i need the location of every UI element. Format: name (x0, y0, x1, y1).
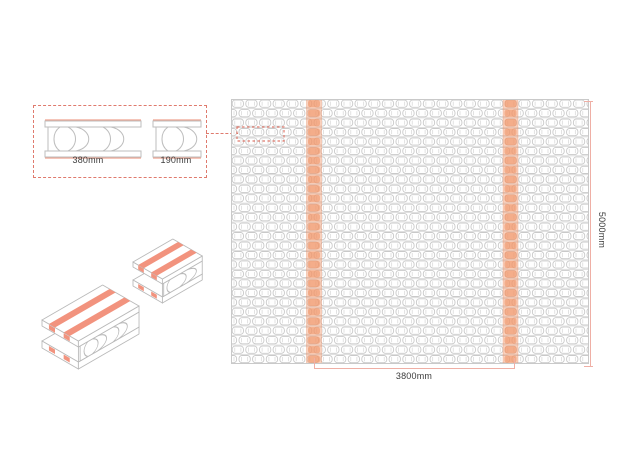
grid-cell (410, 289, 421, 296)
grid-cell (471, 185, 482, 192)
grid-cell (341, 270, 352, 277)
grid-cell (232, 308, 243, 315)
grid-cell (444, 242, 455, 249)
grid-cell (437, 176, 448, 183)
grid-cell (369, 195, 380, 202)
grid-cell (348, 299, 359, 306)
grid-cell (239, 204, 250, 211)
grid-cell (451, 289, 462, 296)
grid-cell (389, 337, 400, 344)
grid-cell (389, 280, 400, 287)
grid-cell (416, 280, 427, 287)
grid-cell (396, 270, 407, 277)
grid-cell (246, 233, 257, 240)
grid-cell (580, 204, 589, 211)
grid-cell (526, 204, 537, 211)
grid-cell (232, 100, 243, 107)
grid-cell (546, 308, 557, 315)
grid-cell (260, 252, 271, 259)
grid-cell (471, 204, 482, 211)
grid-cell (232, 214, 243, 221)
grid-cell (335, 280, 346, 287)
grid-cell (444, 110, 455, 117)
grid-cell (335, 356, 346, 363)
grid-cell (280, 147, 291, 154)
grid-cell (553, 129, 564, 136)
grid-cell (403, 204, 414, 211)
grid-cell (464, 195, 475, 202)
grid-cell (396, 119, 407, 126)
grid-cell (580, 318, 589, 325)
grid-cell (239, 356, 250, 363)
grid-cell (423, 100, 434, 107)
grid-cell (328, 233, 339, 240)
grid-cell (246, 289, 257, 296)
grid-cell (532, 252, 543, 259)
grid-cell (519, 119, 530, 126)
grid-cell (355, 157, 366, 164)
grid-cell (580, 337, 589, 344)
grid-cell (376, 318, 387, 325)
grid-cell (464, 214, 475, 221)
grid-cell (423, 346, 434, 353)
grid-cell (519, 289, 530, 296)
grid-cell (376, 337, 387, 344)
grid-cell (457, 223, 468, 230)
grid-cell (451, 214, 462, 221)
grid-cell (260, 327, 271, 334)
beam-stripe (307, 99, 322, 364)
grid-cell (355, 327, 366, 334)
grid-cell (437, 195, 448, 202)
grid-cell (457, 166, 468, 173)
grid-cell (335, 185, 346, 192)
grid-cell (423, 289, 434, 296)
grid-cell (464, 270, 475, 277)
grid-cell (485, 356, 496, 363)
grid-cell (253, 185, 264, 192)
grid-cell (328, 176, 339, 183)
grid-cell (260, 308, 271, 315)
grid-cell (519, 327, 530, 334)
grid-cell (416, 166, 427, 173)
grid-cell (430, 299, 441, 306)
grid-cell (341, 195, 352, 202)
grid-cell (567, 261, 578, 268)
grid-cell (567, 223, 578, 230)
grid-cell (253, 261, 264, 268)
grid-cell (280, 166, 291, 173)
grid-cell (335, 261, 346, 268)
grid-cell (260, 270, 271, 277)
grid-cell (416, 337, 427, 344)
grid-cell (239, 147, 250, 154)
grid-cell (444, 261, 455, 268)
grid-cell (273, 308, 284, 315)
grid-cell (389, 356, 400, 363)
grid-cell (232, 233, 243, 240)
grid-cell (382, 289, 393, 296)
grid-cell (478, 100, 489, 107)
grid-cell (321, 185, 332, 192)
top-flange (153, 121, 201, 127)
grid-cell (328, 252, 339, 259)
grid-cell (451, 308, 462, 315)
grid-cell (260, 289, 271, 296)
grid-cell (519, 308, 530, 315)
grid-cell (526, 318, 537, 325)
plan-height-dimension-label: 5000mm (595, 201, 607, 259)
grid-cell (396, 195, 407, 202)
grid-cell (478, 308, 489, 315)
grid-cell (403, 147, 414, 154)
grid-cell (553, 147, 564, 154)
grid-cell (260, 195, 271, 202)
grid-cell (410, 327, 421, 334)
grid-cell (567, 242, 578, 249)
grid-cell (539, 185, 550, 192)
grid-cell (321, 318, 332, 325)
grid-cell (526, 356, 537, 363)
grid-cell (376, 356, 387, 363)
grid-cell (389, 185, 400, 192)
grid-cell (239, 337, 250, 344)
grid-cell (260, 214, 271, 221)
grid-cell (485, 129, 496, 136)
grid-cell (444, 223, 455, 230)
cross-section-drawing (34, 106, 206, 177)
grid-cell (382, 270, 393, 277)
grid-cell (266, 280, 277, 287)
grid-cell (410, 233, 421, 240)
grid-cell (546, 195, 557, 202)
grid-cell (485, 110, 496, 117)
grid-cell (519, 252, 530, 259)
grid-cell (457, 299, 468, 306)
grid-cell (341, 308, 352, 315)
grid-cell (492, 138, 503, 145)
grid-cell (478, 119, 489, 126)
grid-cell (362, 242, 373, 249)
grid-cell (328, 346, 339, 353)
grid-cell (573, 195, 584, 202)
grid-cell (526, 337, 537, 344)
grid-cell (335, 129, 346, 136)
grid-cell (396, 138, 407, 145)
grid-cell (451, 195, 462, 202)
grid-cell (382, 327, 393, 334)
grid-cell (355, 119, 366, 126)
grid-cell (573, 346, 584, 353)
grid-cell (355, 100, 366, 107)
grid-cell (567, 280, 578, 287)
grid-cell (457, 204, 468, 211)
grid-cell (348, 147, 359, 154)
grid-cell (232, 346, 243, 353)
grid-cell (539, 318, 550, 325)
grid-cell (287, 327, 298, 334)
grid-cell (341, 327, 352, 334)
grid-cell (376, 280, 387, 287)
grid-cell (266, 204, 277, 211)
grid-cell (362, 318, 373, 325)
grid-cell (485, 185, 496, 192)
grid-cell (464, 176, 475, 183)
grid-cell (287, 138, 298, 145)
grid-cell (573, 270, 584, 277)
grid-cell (376, 110, 387, 117)
grid-cell (553, 204, 564, 211)
grid-cell (430, 280, 441, 287)
dimension-line-vertical (590, 101, 591, 366)
grid-cell (580, 356, 589, 363)
grid-cell (553, 223, 564, 230)
grid-cell (260, 233, 271, 240)
grid-cell (423, 157, 434, 164)
grid-cell (376, 166, 387, 173)
grid-cell (403, 318, 414, 325)
grid-cell (573, 138, 584, 145)
grid-cell (526, 299, 537, 306)
grid-cell (451, 233, 462, 240)
grid-cell (239, 261, 250, 268)
grid-cell (321, 242, 332, 249)
grid-cell (539, 129, 550, 136)
grid-cell (403, 166, 414, 173)
grid-cell (369, 138, 380, 145)
grid-cell (423, 176, 434, 183)
grid-cell (430, 318, 441, 325)
grid-cell (410, 214, 421, 221)
grid-cell (485, 242, 496, 249)
grid-cell (253, 242, 264, 249)
grid-cell (546, 252, 557, 259)
grid-cell (573, 100, 584, 107)
grid-cell (294, 261, 305, 268)
grid-cell (471, 129, 482, 136)
grid-cell (423, 252, 434, 259)
grid-cell (526, 185, 537, 192)
grid-cell (294, 110, 305, 117)
grid-cell (389, 110, 400, 117)
grid-cell (280, 280, 291, 287)
grid-cell (382, 157, 393, 164)
grid-cell (335, 299, 346, 306)
grid-cell (232, 327, 243, 334)
grid-cell (321, 299, 332, 306)
grid-cell (553, 299, 564, 306)
grid-cell (532, 157, 543, 164)
grid-cell (410, 176, 421, 183)
grid-cell (532, 327, 543, 334)
grid-cell (294, 242, 305, 249)
curved-web (68, 127, 89, 151)
grid-cell (437, 346, 448, 353)
grid-cell (580, 261, 589, 268)
grid-cell (403, 110, 414, 117)
grid-cell (492, 252, 503, 259)
grid-cell (492, 214, 503, 221)
grid-cell (485, 318, 496, 325)
grid-cell (546, 157, 557, 164)
grid-cell (294, 318, 305, 325)
grid-cell (396, 100, 407, 107)
grid-cell (239, 166, 250, 173)
grid-cell (266, 299, 277, 306)
grid-cell (478, 289, 489, 296)
dimension-tick (584, 366, 593, 367)
grid-cell (287, 233, 298, 240)
grid-cell (546, 176, 557, 183)
grid-cell (273, 100, 284, 107)
grid-cell (580, 129, 589, 136)
grid-cell (396, 157, 407, 164)
grid-cell (273, 176, 284, 183)
grid-cell (485, 261, 496, 268)
grid-cell (526, 166, 537, 173)
grid-cell (451, 270, 462, 277)
grid-cell (471, 280, 482, 287)
grid-cell (478, 195, 489, 202)
grid-cell (335, 242, 346, 249)
grid-cell (519, 176, 530, 183)
grid-cell (573, 252, 584, 259)
grid-cell (485, 280, 496, 287)
grid-cell (348, 166, 359, 173)
grid-cell (246, 176, 257, 183)
grid-cell (573, 233, 584, 240)
grid-cell (471, 356, 482, 363)
grid-cell (457, 318, 468, 325)
beam-stripe (503, 99, 518, 364)
grid-cell (266, 185, 277, 192)
grid-cell (273, 214, 284, 221)
grid-cell (519, 100, 530, 107)
grid-cell (362, 204, 373, 211)
dimension-tick (514, 358, 515, 369)
grid-cell (328, 327, 339, 334)
grid-cell (492, 289, 503, 296)
grid-cell (362, 185, 373, 192)
grid-cell (335, 223, 346, 230)
grid-cell (560, 176, 571, 183)
grid-cell (519, 346, 530, 353)
grid-cell (451, 138, 462, 145)
grid-cell (266, 166, 277, 173)
grid-cell (546, 289, 557, 296)
grid-cell (464, 327, 475, 334)
grid-cell (464, 119, 475, 126)
grid-cell (239, 223, 250, 230)
grid-cell (430, 147, 441, 154)
grid-cell (369, 233, 380, 240)
grid-cell (389, 318, 400, 325)
grid-cell (580, 147, 589, 154)
grid-cell (253, 223, 264, 230)
grid-cell (328, 214, 339, 221)
grid-cell (355, 214, 366, 221)
plan-grid (231, 99, 589, 364)
grid-cell (416, 204, 427, 211)
grid-cell (403, 356, 414, 363)
grid-cell (416, 356, 427, 363)
grid-cell (260, 346, 271, 353)
grid-cell (280, 204, 291, 211)
grid-cell (423, 119, 434, 126)
grid-cell (294, 223, 305, 230)
grid-cell (341, 138, 352, 145)
grid-cell (430, 129, 441, 136)
grid-cell (253, 356, 264, 363)
grid-cell (573, 176, 584, 183)
grid-cell (457, 147, 468, 154)
cross-section-190 (153, 120, 201, 158)
grid-cell (287, 346, 298, 353)
grid-cell (580, 185, 589, 192)
grid-cell (457, 242, 468, 249)
grid-cell (423, 195, 434, 202)
grid-cell (410, 270, 421, 277)
grid-cell (573, 289, 584, 296)
grid-cell (239, 110, 250, 117)
grid-cell (246, 100, 257, 107)
grid-cell (382, 119, 393, 126)
grid-cell (273, 346, 284, 353)
grid-cell (532, 289, 543, 296)
grid-cell (280, 356, 291, 363)
grid-cell (335, 166, 346, 173)
grid-cell (553, 356, 564, 363)
grid-cell (553, 185, 564, 192)
grid-cell (382, 138, 393, 145)
grid-cell (553, 110, 564, 117)
grid-cell (369, 327, 380, 334)
grid-cell (328, 119, 339, 126)
grid-cell (348, 261, 359, 268)
grid-cell (546, 119, 557, 126)
grid-cell (526, 280, 537, 287)
grid-cell (294, 280, 305, 287)
grid-cell (280, 129, 291, 136)
end-web (48, 127, 60, 151)
grid-cell (519, 233, 530, 240)
grid-cell (430, 204, 441, 211)
grid-cell (553, 242, 564, 249)
grid-cell (396, 327, 407, 334)
grid-cell (444, 185, 455, 192)
grid-cell (437, 327, 448, 334)
grid-cell (260, 157, 271, 164)
grid-cell (457, 280, 468, 287)
grid-cell (266, 356, 277, 363)
grid-cell (430, 261, 441, 268)
grid-cell (519, 195, 530, 202)
isometric-views (28, 228, 213, 388)
grid-cell (348, 356, 359, 363)
grid-cell (410, 157, 421, 164)
end-web (156, 127, 168, 151)
grid-cell (471, 223, 482, 230)
grid-cell (355, 289, 366, 296)
grid-cell (273, 195, 284, 202)
grid-cell (239, 299, 250, 306)
grid-cell (376, 223, 387, 230)
grid-cell (573, 214, 584, 221)
grid-cell (321, 166, 332, 173)
grid-cell (416, 242, 427, 249)
grid-cell (321, 280, 332, 287)
grid-cell (567, 110, 578, 117)
